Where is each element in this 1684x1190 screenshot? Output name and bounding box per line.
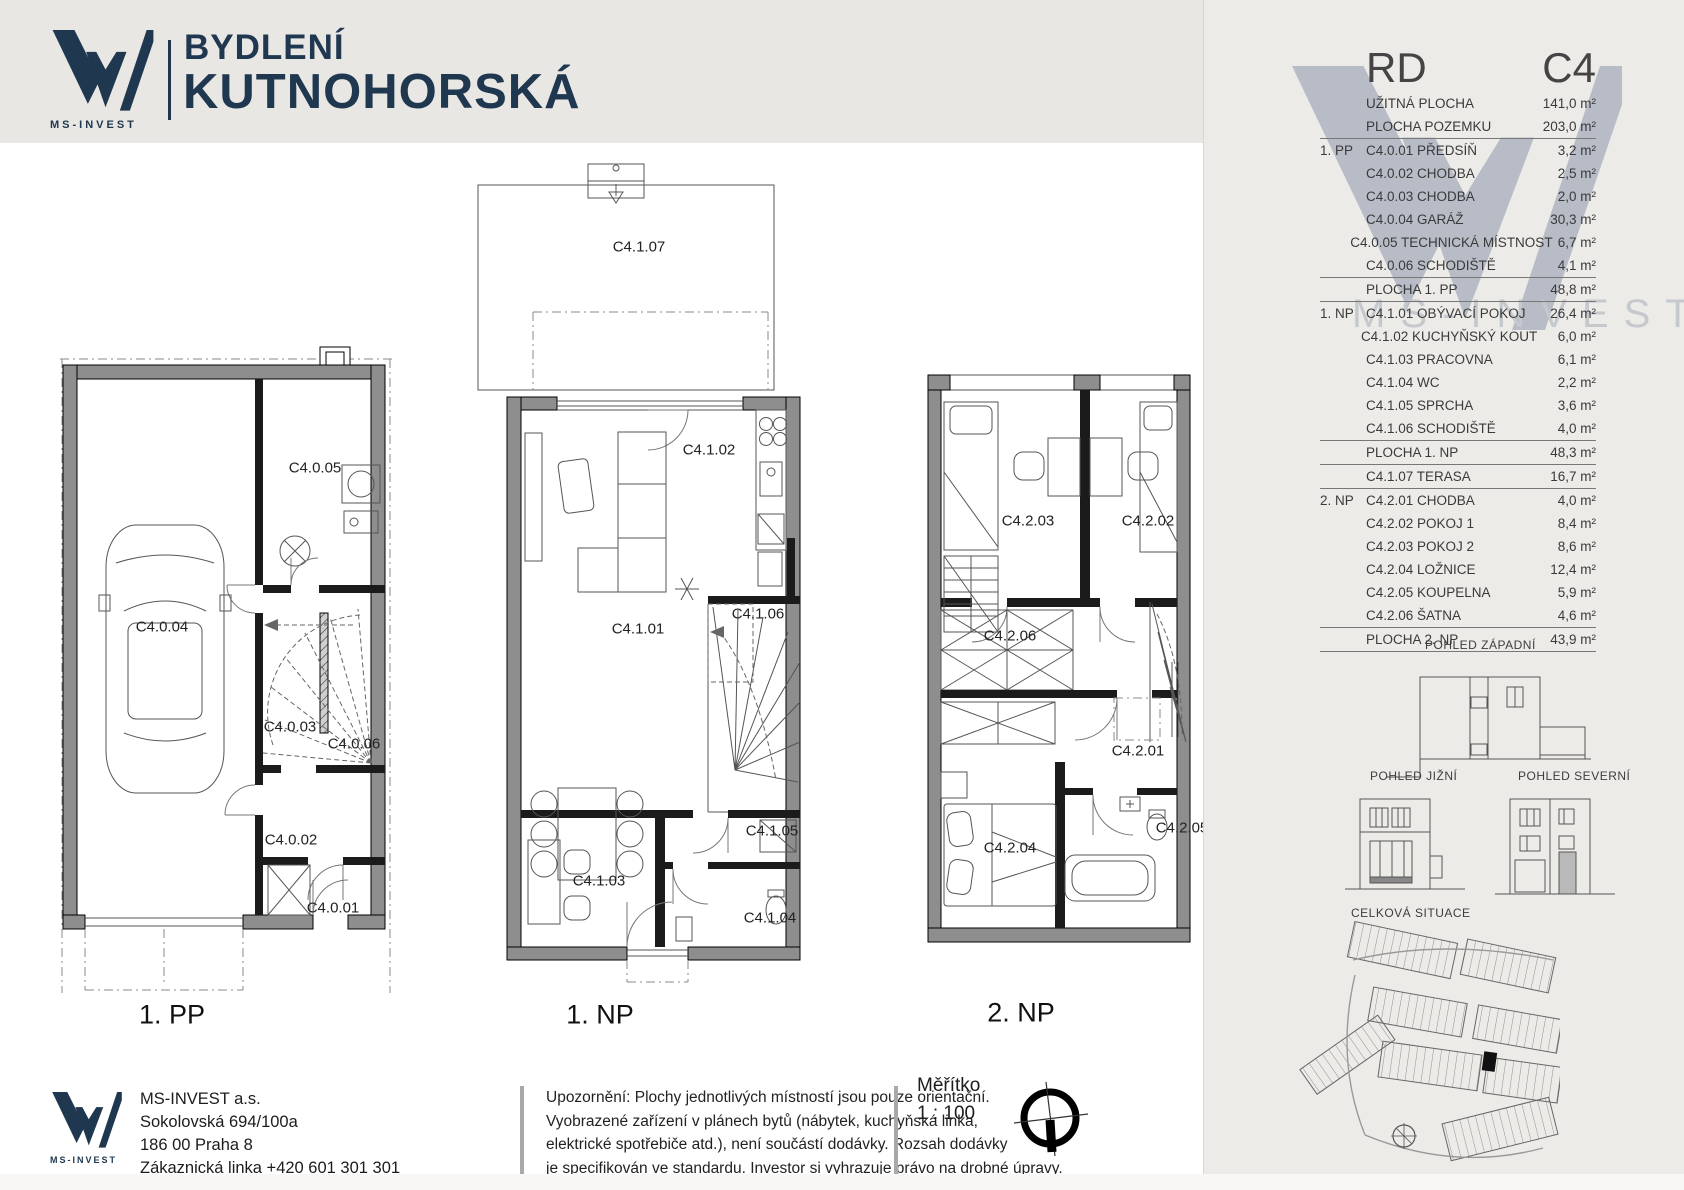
room-label: C4.1.07	[613, 239, 666, 256]
row-value: 4,0 m²	[1530, 421, 1596, 436]
row-value: 4,1 m²	[1530, 258, 1596, 273]
elevation-west-label: POHLED ZÁPADNÍ	[1425, 638, 1536, 652]
row-name: C4.1.05 SPRCHA	[1366, 398, 1530, 413]
area-table-row: C4.2.03 POKOJ 28,6 m²	[1320, 535, 1596, 558]
bottom-strip	[0, 1174, 1684, 1190]
area-table-row: C4.1.06 SCHODIŠTĚ4,0 m²	[1320, 417, 1596, 440]
row-name: C4.1.04 WC	[1366, 375, 1530, 390]
ms-invest-logo-icon	[50, 30, 156, 114]
brand-title-line2: KUTNOHORSKÁ	[183, 64, 581, 120]
room-label: C4.2.02	[1122, 513, 1175, 530]
area-table-row: C4.0.04 GARÁŽ30,3 m²	[1320, 208, 1596, 231]
area-table-row: C4.1.07 TERASA16,7 m²	[1320, 465, 1596, 489]
footer-divider	[520, 1086, 524, 1180]
plan-sheet: MS-INVEST BYDLENÍ KUTNOHORSKÁ	[0, 0, 1684, 1190]
room-label: C4.0.05	[289, 460, 342, 477]
area-table-row: C4.1.05 SPRCHA3,6 m²	[1320, 394, 1596, 417]
brand-title-line1: BYDLENÍ	[184, 28, 345, 68]
row-name: C4.2.02 POKOJ 1	[1366, 516, 1530, 531]
site-highlight-unit	[1482, 1051, 1498, 1072]
row-value: 141,0 m²	[1530, 96, 1596, 111]
row-value: 4,6 m²	[1530, 608, 1596, 623]
row-name: PLOCHA POZEMKU	[1366, 119, 1530, 134]
area-table-row: 1. PPC4.0.01 PŘEDSÍŇ3,2 m²	[1320, 139, 1596, 162]
elevation-south-drawing	[1340, 784, 1475, 899]
row-value: 30,3 m²	[1530, 212, 1596, 227]
elevation-south-label: POHLED JIŽNÍ	[1370, 769, 1457, 783]
row-name: C4.2.06 ŠATNA	[1366, 608, 1530, 623]
footer-address-line: Sokolovská 694/100a	[140, 1111, 400, 1134]
area-table-row: C4.0.02 CHODBA2,5 m²	[1320, 162, 1596, 185]
row-name: PLOCHA 1. NP	[1366, 445, 1530, 460]
footer-address: MS-INVEST a.s. Sokolovská 694/100a 186 0…	[140, 1088, 400, 1180]
footer-disclaimer: Upozornění: Plochy jednotlivých místnost…	[546, 1086, 1063, 1180]
area-table-row: C4.1.02 KUCHYŇSKÝ KOUT6,0 m²	[1320, 325, 1596, 348]
row-name: C4.1.03 PRACOVNA	[1366, 352, 1530, 367]
area-table-row: PLOCHA POZEMKU203,0 m²	[1320, 115, 1596, 139]
row-name: C4.2.03 POKOJ 2	[1366, 539, 1530, 554]
floorplan-2np-drawing	[852, 342, 1200, 992]
plan-caption-1pp: 1. PP	[139, 1000, 205, 1031]
unit-code: C4	[1542, 44, 1596, 92]
row-name: C4.0.06 SCHODIŠTĚ	[1366, 258, 1530, 273]
area-table-row: C4.1.03 PRACOVNA6,1 m²	[1320, 348, 1596, 371]
room-label: C4.2.06	[984, 628, 1037, 645]
row-name: C4.1.01 OBÝVACÍ POKOJ	[1366, 306, 1530, 321]
row-value: 6,0 m²	[1537, 329, 1596, 344]
row-value: 6,7 m²	[1553, 235, 1596, 250]
area-table-row: PLOCHA 1. NP48,3 m²	[1320, 440, 1596, 465]
unit-header: RD C4	[1320, 44, 1596, 92]
row-name: C4.0.02 CHODBA	[1366, 166, 1530, 181]
row-name: UŽITNÁ PLOCHA	[1366, 96, 1530, 111]
footer-address-line: 186 00 Praha 8	[140, 1134, 400, 1157]
disclaimer-line: Upozornění: Plochy jednotlivých místnost…	[546, 1086, 1063, 1110]
area-table-row: C4.2.02 POKOJ 18,4 m²	[1320, 512, 1596, 535]
room-label: C4.0.04	[136, 619, 189, 636]
row-name: C4.1.06 SCHODIŠTĚ	[1366, 421, 1530, 436]
header-logo: MS-INVEST	[50, 30, 156, 131]
row-value: 4,0 m²	[1530, 493, 1596, 508]
row-value: 43,9 m²	[1530, 632, 1596, 647]
row-value: 2,2 m²	[1530, 375, 1596, 390]
row-level: 1. PP	[1320, 143, 1366, 158]
row-value: 2,5 m²	[1530, 166, 1596, 181]
footer-logo-icon	[50, 1092, 124, 1150]
row-value: 48,3 m²	[1530, 445, 1596, 460]
area-table-row: C4.1.04 WC2,2 m²	[1320, 371, 1596, 394]
unit-type: RD	[1366, 44, 1427, 92]
floorplan-1np-drawing	[458, 162, 802, 984]
footer-company: MS-INVEST a.s.	[140, 1088, 400, 1111]
row-name: C4.2.04 LOŽNICE	[1366, 562, 1530, 577]
room-label: C4.0.01	[307, 900, 360, 917]
room-label: C4.2.04	[984, 840, 1037, 857]
elevation-north-label: POHLED SEVERNÍ	[1518, 769, 1630, 783]
room-label: C4.2.03	[1002, 513, 1055, 530]
area-table-row: C4.0.03 CHODBA2,0 m²	[1320, 185, 1596, 208]
row-name: C4.2.05 KOUPELNA	[1366, 585, 1530, 600]
row-value: 3,2 m²	[1530, 143, 1596, 158]
row-name: C4.0.05 TECHNICKÁ MÍSTNOST	[1350, 235, 1552, 250]
floorplan-1pp: C4.0.05 C4.0.04 C4.0.03 C4.0.06 C4.0.02 …	[58, 345, 394, 1000]
area-table-row: C4.2.05 KOUPELNA5,9 m²	[1320, 581, 1596, 604]
area-table-row: C4.2.04 LOŽNICE12,4 m²	[1320, 558, 1596, 581]
row-level: 2. NP	[1320, 493, 1366, 508]
elevation-north-drawing	[1495, 784, 1620, 902]
floorplan-2np: C4.2.03 C4.2.02 C4.2.06 C4.2.01 C4.2.04 …	[852, 342, 1200, 992]
row-value: 16,7 m²	[1530, 469, 1596, 484]
plan-caption-1np: 1. NP	[566, 1000, 634, 1031]
row-value: 8,4 m²	[1530, 516, 1596, 531]
car-icon	[99, 525, 231, 793]
area-table-row: PLOCHA 1. PP48,8 m²	[1320, 277, 1596, 302]
room-label: C4.0.03	[264, 719, 317, 736]
area-table-row: UŽITNÁ PLOCHA141,0 m²	[1320, 92, 1596, 115]
area-table-rows: UŽITNÁ PLOCHA141,0 m²PLOCHA POZEMKU203,0…	[1320, 92, 1596, 652]
scale-block: Měřítko 1 : 100	[917, 1072, 980, 1128]
room-label: C4.2.01	[1112, 743, 1165, 760]
disclaimer-line: Vyobrazené zařízení v plánech bytů (náby…	[546, 1110, 1063, 1134]
row-name: C4.0.01 PŘEDSÍŇ	[1366, 143, 1530, 158]
area-table-row: 2. NPC4.2.01 CHODBA4,0 m²	[1320, 489, 1596, 512]
row-value: 5,9 m²	[1530, 585, 1596, 600]
site-plan-label: CELKOVÁ SITUACE	[1351, 906, 1471, 920]
floorplan-1np: C4.1.07 C4.1.02 C4.1.01 C4.1.06 C4.1.03 …	[458, 162, 802, 984]
row-value: 3,6 m²	[1530, 398, 1596, 413]
site-plan-drawing	[1295, 920, 1560, 1174]
brand-divider	[168, 40, 171, 120]
row-value: 26,4 m²	[1530, 306, 1596, 321]
footer-logo: MS-INVEST	[50, 1092, 124, 1165]
footer-divider	[894, 1086, 898, 1180]
row-value: 6,1 m²	[1530, 352, 1596, 367]
area-table-row: C4.2.06 ŠATNA4,6 m²	[1320, 604, 1596, 627]
row-name: C4.0.04 GARÁŽ	[1366, 212, 1530, 227]
row-level: 1. NP	[1320, 306, 1366, 321]
area-table-row: C4.0.06 SCHODIŠTĚ4,1 m²	[1320, 254, 1596, 277]
room-label: C4.2.05	[1156, 820, 1209, 837]
row-value: 48,8 m²	[1530, 282, 1596, 297]
row-name: C4.2.01 CHODBA	[1366, 493, 1530, 508]
row-value: 12,4 m²	[1530, 562, 1596, 577]
area-table-row: 1. NPC4.1.01 OBÝVACÍ POKOJ26,4 m²	[1320, 302, 1596, 325]
row-value: 2,0 m²	[1530, 189, 1596, 204]
row-value: 203,0 m²	[1530, 119, 1596, 134]
row-name: C4.1.07 TERASA	[1366, 469, 1530, 484]
north-compass-icon	[1012, 1080, 1092, 1160]
room-label: C4.1.06	[732, 606, 785, 623]
room-label: C4.1.03	[573, 873, 626, 890]
area-table-row: C4.0.05 TECHNICKÁ MÍSTNOST6,7 m²	[1320, 231, 1596, 254]
disclaimer-line: elektrické spotřebiče atd.), není součás…	[546, 1133, 1063, 1157]
row-name: C4.0.03 CHODBA	[1366, 189, 1530, 204]
footer-logo-text: MS-INVEST	[50, 1155, 124, 1165]
plan-caption-2np: 2. NP	[987, 998, 1055, 1029]
room-label: C4.1.01	[612, 621, 665, 638]
scale-value: 1 : 100	[917, 1100, 980, 1128]
scale-label: Měřítko	[917, 1072, 980, 1100]
ms-invest-logo-text: MS-INVEST	[50, 119, 156, 131]
row-name: PLOCHA 1. PP	[1366, 282, 1530, 297]
row-name: C4.1.02 KUCHYŇSKÝ KOUT	[1361, 329, 1537, 344]
room-label: C4.1.02	[683, 442, 736, 459]
row-value: 8,6 m²	[1530, 539, 1596, 554]
elevation-west-drawing	[1385, 652, 1597, 782]
room-label: C4.1.05	[746, 823, 799, 840]
room-label: C4.0.02	[265, 832, 318, 849]
room-label: C4.1.04	[744, 910, 797, 927]
room-label: C4.0.06	[328, 736, 381, 753]
